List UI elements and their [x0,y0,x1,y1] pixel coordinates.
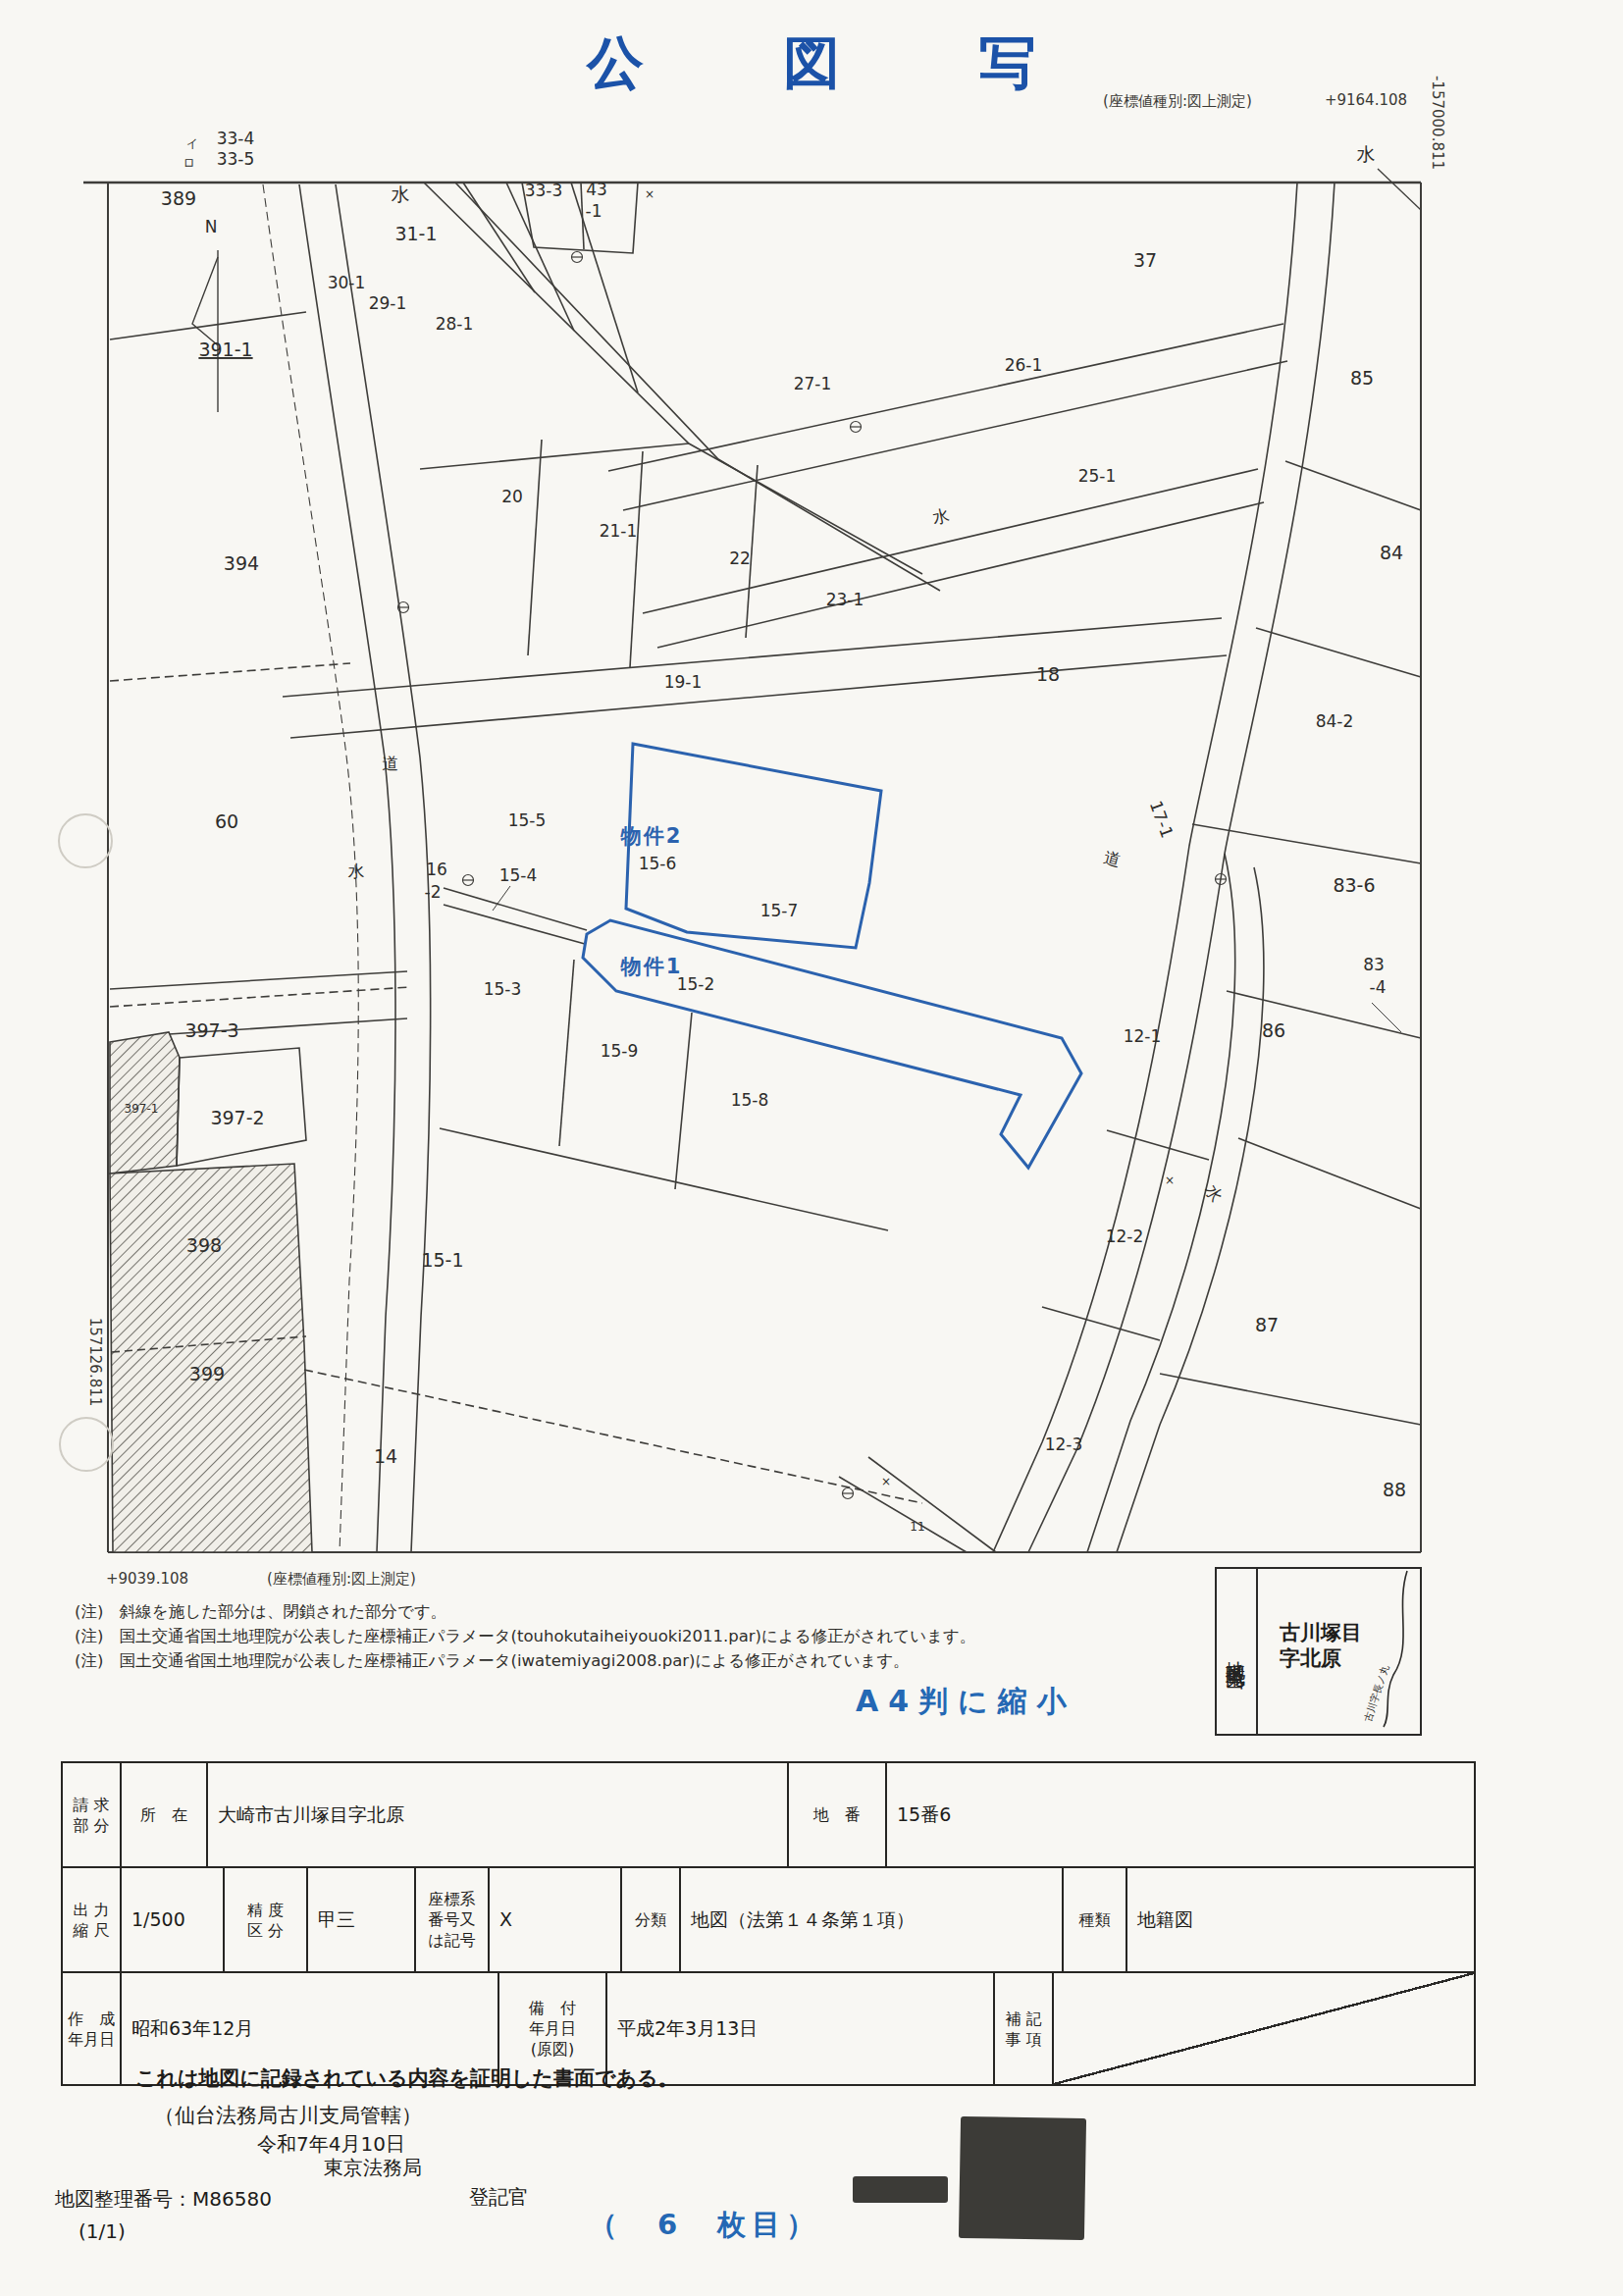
map-label: -2 [425,882,442,902]
map-label: 88 [1383,1479,1406,1500]
map-label: 397-2 [210,1107,264,1128]
map-note: (注) 国土交通省国土地理院が公表した座標補正パラメータ(touhokutaih… [75,1624,975,1648]
map-label: 道 [383,754,399,773]
map-label: 26-1 [1005,355,1043,375]
map-note: (注) 斜線を施した部分は、閉鎖された部分です。 [75,1599,975,1624]
coordinate-system-value: X [488,1868,620,1971]
map-label: 物件2 [620,824,683,848]
location-value: 大崎市古川塚目字北原 [206,1763,787,1866]
map-label: 389 [161,187,196,209]
map-label: イ [186,136,198,150]
hole-punch [59,1417,114,1472]
creation-date-label: 作 成年月日 [63,1973,120,2084]
map-label: N [205,217,218,236]
map-label: +9039.108 [106,1570,188,1588]
map-label: 15-5 [508,810,547,830]
map-label: 84-2 [1316,711,1354,731]
map-label: 20 [501,487,523,506]
map-notes: (注) 斜線を施した部分は、閉鎖された部分です。(注) 国土交通省国土地理院が公… [75,1599,975,1673]
map-label: 43 [586,180,607,199]
table-row: 請 求部 分 所 在 大崎市古川塚目字北原 地 番 15番6 [63,1763,1474,1866]
map-label: -157000.811 [1429,76,1446,170]
map-label: 17-1 [1146,798,1178,840]
map-label: 道 [1102,847,1124,870]
map-label: 33-3 [525,181,563,200]
jurisdiction-note: （仙台法務局古川支局管轄） [154,2102,422,2129]
map-label: -1 [586,201,602,221]
output-scale-value: 1/500 [120,1868,223,1971]
map-label: 157126.811 [86,1318,104,1407]
map-label: 15-9 [601,1041,639,1061]
map-label: 12-2 [1106,1226,1144,1246]
parcel-boundaries [83,169,1421,1552]
map-note: (注) 国土交通省国土地理院が公表した座標補正パラメータ(iwatemiyagi… [75,1648,975,1673]
lot-number-label: 地 番 [787,1763,885,1866]
map-label: 86 [1262,1019,1285,1041]
map-label: 394 [224,552,259,574]
registrar-name-redaction [853,2176,948,2203]
map-label: 27-1 [794,374,832,393]
map-label: 14 [374,1445,397,1467]
map-label: 水 [392,183,410,205]
map-label: 水 [1201,1181,1227,1206]
registrar-stamp-redaction [959,2116,1086,2240]
map-label: 30-1 [328,273,366,292]
lot-number-value: 15番6 [885,1763,1474,1866]
classification-label: 分類 [620,1868,679,1971]
map-label: 31-1 [394,223,437,244]
map-label: 33-5 [217,149,255,169]
coordinate-system-label: 座標系番号又は記号 [414,1868,488,1971]
map-label: 398 [186,1234,222,1256]
map-label: 12-3 [1045,1435,1083,1454]
map-label: 15-3 [484,979,522,999]
request-part-label: 請 求部 分 [63,1763,120,1866]
map-label: 391-1 [198,339,252,360]
map-label: 33-4 [217,129,255,148]
location-label: 所 在 [120,1763,206,1866]
map-label: × [881,1475,891,1488]
map-label: 87 [1255,1314,1279,1335]
map-label: 29-1 [369,293,407,313]
map-label: 19-1 [664,672,703,692]
map-label: (座標値種別:図上測定) [267,1570,416,1588]
classification-value: 地図（法第１４条第１項） [679,1868,1062,1971]
map-label: 15-6 [639,854,677,873]
map-label: 水 [348,861,365,881]
area-index-box: 地番区域見出 古川塚目 字北原 古川字長ノ丸 [1215,1567,1422,1736]
map-label: 16 [426,860,447,879]
map-label: 28-1 [436,314,474,334]
map-label: × [645,187,654,201]
map-label: 25-1 [1078,466,1117,486]
map-label: 水 [930,505,951,528]
map-label: 12-1 [1124,1026,1162,1046]
map-label: 23-1 [826,590,864,609]
map-label: 397-1 [125,1102,159,1116]
map-label: 397-3 [184,1019,238,1041]
precision-class-label: 精 度区 分 [223,1868,306,1971]
map-label: 37 [1133,249,1157,271]
map-label: 15-1 [421,1249,463,1271]
map-label: 15-4 [499,865,538,885]
map-label: 18 [1036,663,1060,685]
area-index-value: 古川塚目 字北原 [1280,1620,1362,1671]
map-label: 22 [729,548,751,568]
remarks-empty-cell [1052,1973,1474,2084]
issue-date: 令和7年4月10日 [257,2131,405,2158]
map-label: 399 [189,1363,225,1384]
remarks-label: 補 記事 項 [993,1973,1052,2084]
map-label: 60 [215,810,238,832]
map-label: 11 [910,1520,924,1534]
map-label: 84 [1380,542,1403,563]
hole-punch [58,813,113,868]
map-label: × [1165,1174,1175,1187]
map-label: 15-8 [731,1090,769,1110]
map-label: 21-1 [600,521,638,541]
reduction-note: A4判に縮小 [856,1682,1076,1722]
page-indicator: (1/1) [79,2219,126,2243]
cadastral-map-sheet: 公 図 写 [0,0,1623,2296]
output-scale-label: 出 力縮 尺 [63,1868,120,1971]
certificate-table: 請 求部 分 所 在 大崎市古川塚目字北原 地 番 15番6 出 力縮 尺 1/… [61,1761,1476,2086]
map-label: -4 [1370,977,1387,997]
precision-class-value: 甲三 [306,1868,414,1971]
map-label: 85 [1350,367,1374,389]
kind-label: 種類 [1062,1868,1126,1971]
certification-statement: これは地図に記録されている内容を証明した書面である。 [135,2064,678,2092]
map-label: 83 [1363,955,1385,974]
kind-value: 地籍図 [1126,1868,1474,1971]
area-index-label: 地番区域見出 [1217,1569,1258,1734]
map-label: +9164.108 [1325,91,1407,109]
map-label: 物件1 [620,955,683,978]
map-label: 83-6 [1333,874,1375,896]
map-label: 水 [1357,143,1376,165]
issuing-office: 東京法務局 [324,2155,422,2181]
map-label: 15-2 [677,974,715,994]
map-label: ロ [183,156,195,170]
map-drawing: イロ33-433-5389N391-1394水31-130-129-128-13… [0,0,1623,1629]
map-label: 15-7 [760,901,799,920]
map-registry-number: 地図整理番号：M86580 [55,2186,272,2213]
sheet-number: （ 6 枚目） [589,2206,820,2245]
table-row: 出 力縮 尺 1/500 精 度区 分 甲三 座標系番号又は記号 X 分類 地図… [63,1866,1474,1971]
registrar-label: 登記官 [469,2184,528,2211]
map-label: (座標値種別:図上測定) [1103,92,1252,110]
